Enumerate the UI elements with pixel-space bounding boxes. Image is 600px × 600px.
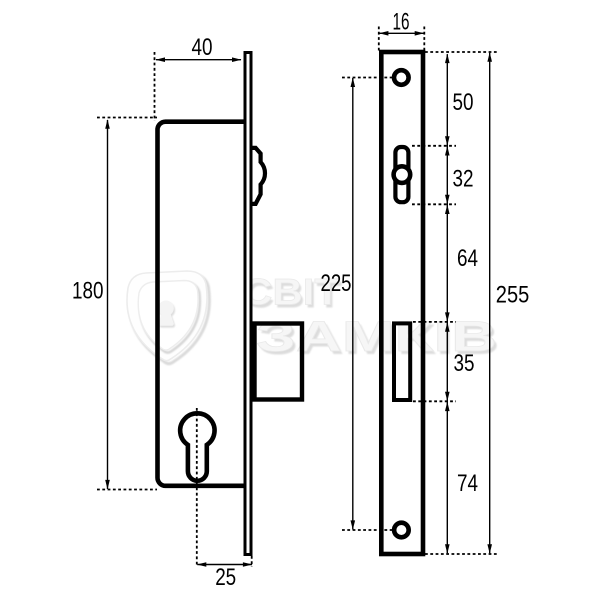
svg-text:35: 35 — [454, 350, 475, 377]
svg-text:50: 50 — [453, 89, 474, 116]
svg-text:180: 180 — [72, 277, 104, 304]
svg-text:25: 25 — [215, 564, 236, 591]
svg-text:64: 64 — [457, 245, 478, 272]
svg-text:225: 225 — [321, 270, 352, 297]
svg-text:16: 16 — [393, 9, 410, 36]
svg-text:40: 40 — [192, 34, 213, 61]
svg-text:32: 32 — [453, 166, 474, 193]
svg-text:74: 74 — [457, 470, 478, 497]
svg-text:255: 255 — [496, 282, 530, 309]
